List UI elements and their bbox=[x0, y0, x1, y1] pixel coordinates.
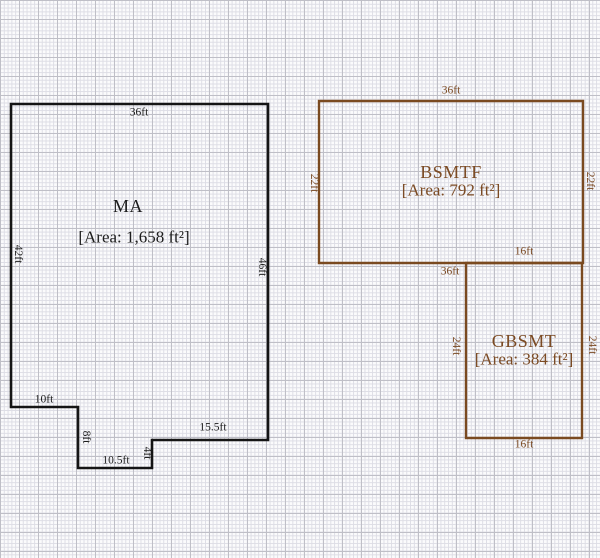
ma-dim-notch: 4ft bbox=[140, 447, 152, 460]
ma-dim-left: 42ft bbox=[11, 245, 23, 264]
bsmtf-dim-bottom: 36ft bbox=[441, 266, 460, 278]
bsmtf-dim-top: 36ft bbox=[442, 85, 461, 97]
ma-dim-bottom: 10.5ft bbox=[102, 455, 129, 467]
gbsmt-dim-top: 16ft bbox=[515, 246, 534, 258]
ma-dim-step-down: 8ft bbox=[79, 431, 91, 444]
ma-title: MA bbox=[113, 197, 143, 215]
floorplan-sketch bbox=[0, 0, 600, 558]
gbsmt-dim-left: 24ft bbox=[449, 337, 461, 356]
ma-area-label: [Area: 1,658 ft²] bbox=[78, 229, 189, 246]
ma-outline[interactable] bbox=[11, 104, 268, 468]
ma-dim-right: 46ft bbox=[255, 258, 267, 277]
bsmtf-dim-right: 22ft bbox=[583, 172, 595, 191]
gbsmt-title: GBSMT bbox=[492, 332, 557, 350]
gbsmt-dim-bottom: 16ft bbox=[515, 439, 534, 451]
ma-dim-bottom-right: 15.5ft bbox=[199, 422, 226, 434]
ma-dim-step: 10ft bbox=[35, 394, 54, 406]
ma-dim-top: 36ft bbox=[130, 107, 149, 119]
gbsmt-dim-right: 24ft bbox=[585, 336, 597, 355]
bsmtf-dim-left: 22ft bbox=[307, 174, 319, 193]
bsmtf-area-label: [Area: 792 ft²] bbox=[402, 182, 501, 199]
gbsmt-area-label: [Area: 384 ft²] bbox=[475, 351, 574, 368]
sketch-grid-canvas[interactable]: 36ft 42ft 46ft 10ft 8ft 10.5ft 4ft 15.5f… bbox=[0, 0, 600, 558]
bsmtf-title: BSMTF bbox=[420, 163, 482, 181]
